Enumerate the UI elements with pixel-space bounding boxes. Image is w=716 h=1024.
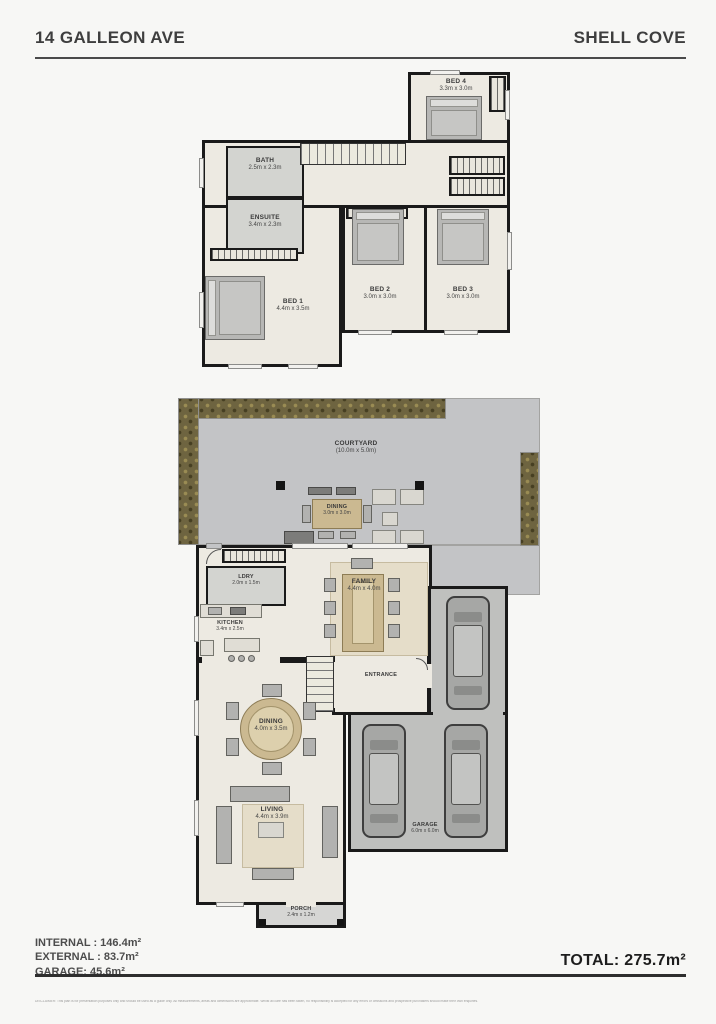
- car-roof: [369, 753, 399, 805]
- outdoor-lounge-chair: [372, 530, 396, 544]
- page-title: 14 GALLEON AVE: [35, 28, 185, 48]
- chair: [324, 601, 336, 615]
- hall-cupboard: [222, 549, 286, 563]
- total-area: TOTAL: 275.7m²: [561, 952, 686, 970]
- car-roof: [451, 753, 481, 805]
- car-roof: [453, 625, 483, 677]
- bed1-label: BED 1 4.4m x 3.5m: [256, 298, 330, 313]
- chair: [351, 558, 373, 569]
- coffee-table: [258, 822, 284, 838]
- kitchen-label: KITCHEN 3.4m x 2.5m: [198, 620, 262, 632]
- window: [444, 330, 478, 335]
- kitchen-sink: [208, 607, 222, 615]
- outdoor-buffet: [308, 487, 332, 495]
- suburb-title: SHELL COVE: [574, 28, 686, 48]
- linen-closet-1: [449, 156, 505, 175]
- door-gap-courtyard: [206, 543, 222, 549]
- bed4-bed: [426, 96, 482, 140]
- window: [228, 364, 262, 369]
- garden-bed-left: [178, 398, 199, 545]
- internal-area: INTERNAL : 146.4m²: [35, 936, 141, 950]
- header-divider: [35, 57, 686, 59]
- entrance-label: ENTRANCE: [346, 672, 416, 679]
- window: [288, 364, 318, 369]
- chair: [388, 624, 400, 638]
- area-summary: INTERNAL : 146.4m² EXTERNAL : 83.7m² GAR…: [35, 936, 141, 979]
- stool: [228, 655, 235, 662]
- room-bath: [226, 146, 304, 198]
- family-label: FAMILY 4.4m x 4.0m: [332, 578, 396, 593]
- sofa: [230, 786, 290, 802]
- pergola-post: [276, 481, 285, 490]
- sliding-door: [352, 543, 408, 549]
- disclaimer-text: DISCLAIMER: This plan is for presentatio…: [35, 1000, 478, 1003]
- pillow: [430, 99, 478, 107]
- sofa: [216, 806, 232, 864]
- chair: [262, 762, 282, 775]
- porch-post: [259, 919, 266, 926]
- blanket: [442, 223, 484, 261]
- window: [430, 70, 460, 75]
- courtyard-label: COURTYARD (10.0m x 5.0m): [300, 440, 412, 455]
- blanket: [219, 281, 261, 335]
- chair: [302, 505, 311, 523]
- garage-label: GARAGE 6.0m x 6.0m: [398, 822, 452, 834]
- car-windshield: [454, 612, 482, 622]
- outdoor-lounge-chair: [400, 489, 424, 505]
- linen-closet-2: [449, 177, 505, 196]
- dining-label: DINING 4.0m x 3.5m: [240, 718, 302, 733]
- chair: [303, 702, 316, 720]
- car: [444, 724, 488, 838]
- window: [199, 158, 204, 188]
- blanket: [431, 110, 477, 136]
- car-windshield: [452, 740, 480, 750]
- cooktop: [230, 607, 246, 615]
- outdoor-side-table: [382, 512, 398, 526]
- external-area: EXTERNAL : 83.7m²: [35, 950, 141, 964]
- pergola-post: [415, 481, 424, 490]
- window: [194, 700, 199, 736]
- bed2-bed: [352, 209, 404, 265]
- porch-label: PORCH 2.4m x 1.2m: [258, 906, 344, 918]
- kitchen-island: [224, 638, 260, 652]
- chair: [318, 531, 334, 539]
- bed4-label: BED 4 3.3m x 3.0m: [420, 78, 492, 93]
- footer-divider: [35, 974, 686, 977]
- garden-bed-right: [520, 452, 539, 546]
- bed2-label: BED 2 3.0m x 3.0m: [347, 286, 413, 301]
- wall-bed2-bed3: [424, 208, 427, 330]
- outdoor-lounge-chair: [400, 530, 424, 544]
- stool: [248, 655, 255, 662]
- opening-hall-dining: [334, 662, 344, 708]
- car-windshield: [370, 740, 398, 750]
- garden-bed-top: [178, 398, 446, 419]
- window: [216, 902, 244, 907]
- ensuite-label: ENSUITE 3.4m x 2.3m: [228, 214, 302, 229]
- entrance-hall: [332, 653, 430, 715]
- pillow: [356, 212, 400, 220]
- window: [194, 800, 199, 836]
- window: [505, 90, 510, 120]
- stairs-upper: [300, 143, 406, 165]
- alfresco-label: DINING 3.0m x 3.0m: [312, 504, 362, 516]
- car: [446, 596, 490, 710]
- tv-unit: [252, 868, 294, 880]
- fridge: [200, 640, 214, 656]
- living-label: LIVING 4.4m x 3.9m: [238, 806, 306, 821]
- chair: [388, 601, 400, 615]
- chair: [226, 738, 239, 756]
- window: [358, 330, 392, 335]
- chair: [262, 684, 282, 697]
- stool: [238, 655, 245, 662]
- car-rear-window: [454, 686, 482, 695]
- window: [199, 292, 204, 328]
- pillow: [208, 280, 216, 336]
- bed3-label: BED 3 3.0m x 3.0m: [430, 286, 496, 301]
- car-rear-window: [452, 814, 480, 823]
- chair: [340, 531, 356, 539]
- chair: [226, 702, 239, 720]
- car-rear-window: [370, 814, 398, 823]
- wardrobe-bed1: [210, 248, 298, 261]
- sliding-door: [292, 543, 348, 549]
- chair: [303, 738, 316, 756]
- window: [507, 232, 512, 270]
- wall-unit: [322, 806, 338, 858]
- floorplan-page: 14 GALLEON AVE SHELL COVE BED 4 3.3m: [0, 0, 716, 1024]
- chair: [324, 624, 336, 638]
- bath-label: BATH 2.5m x 2.3m: [228, 157, 302, 172]
- outdoor-lounge-chair: [372, 489, 396, 505]
- blanket: [357, 223, 399, 261]
- chair: [363, 505, 372, 523]
- car: [362, 724, 406, 838]
- ldry-label: LDRY 2.0m x 1.5m: [206, 574, 286, 586]
- bed3-bed: [437, 209, 489, 265]
- outdoor-buffet: [336, 487, 356, 495]
- porch-post: [337, 919, 344, 926]
- pillow: [441, 212, 485, 220]
